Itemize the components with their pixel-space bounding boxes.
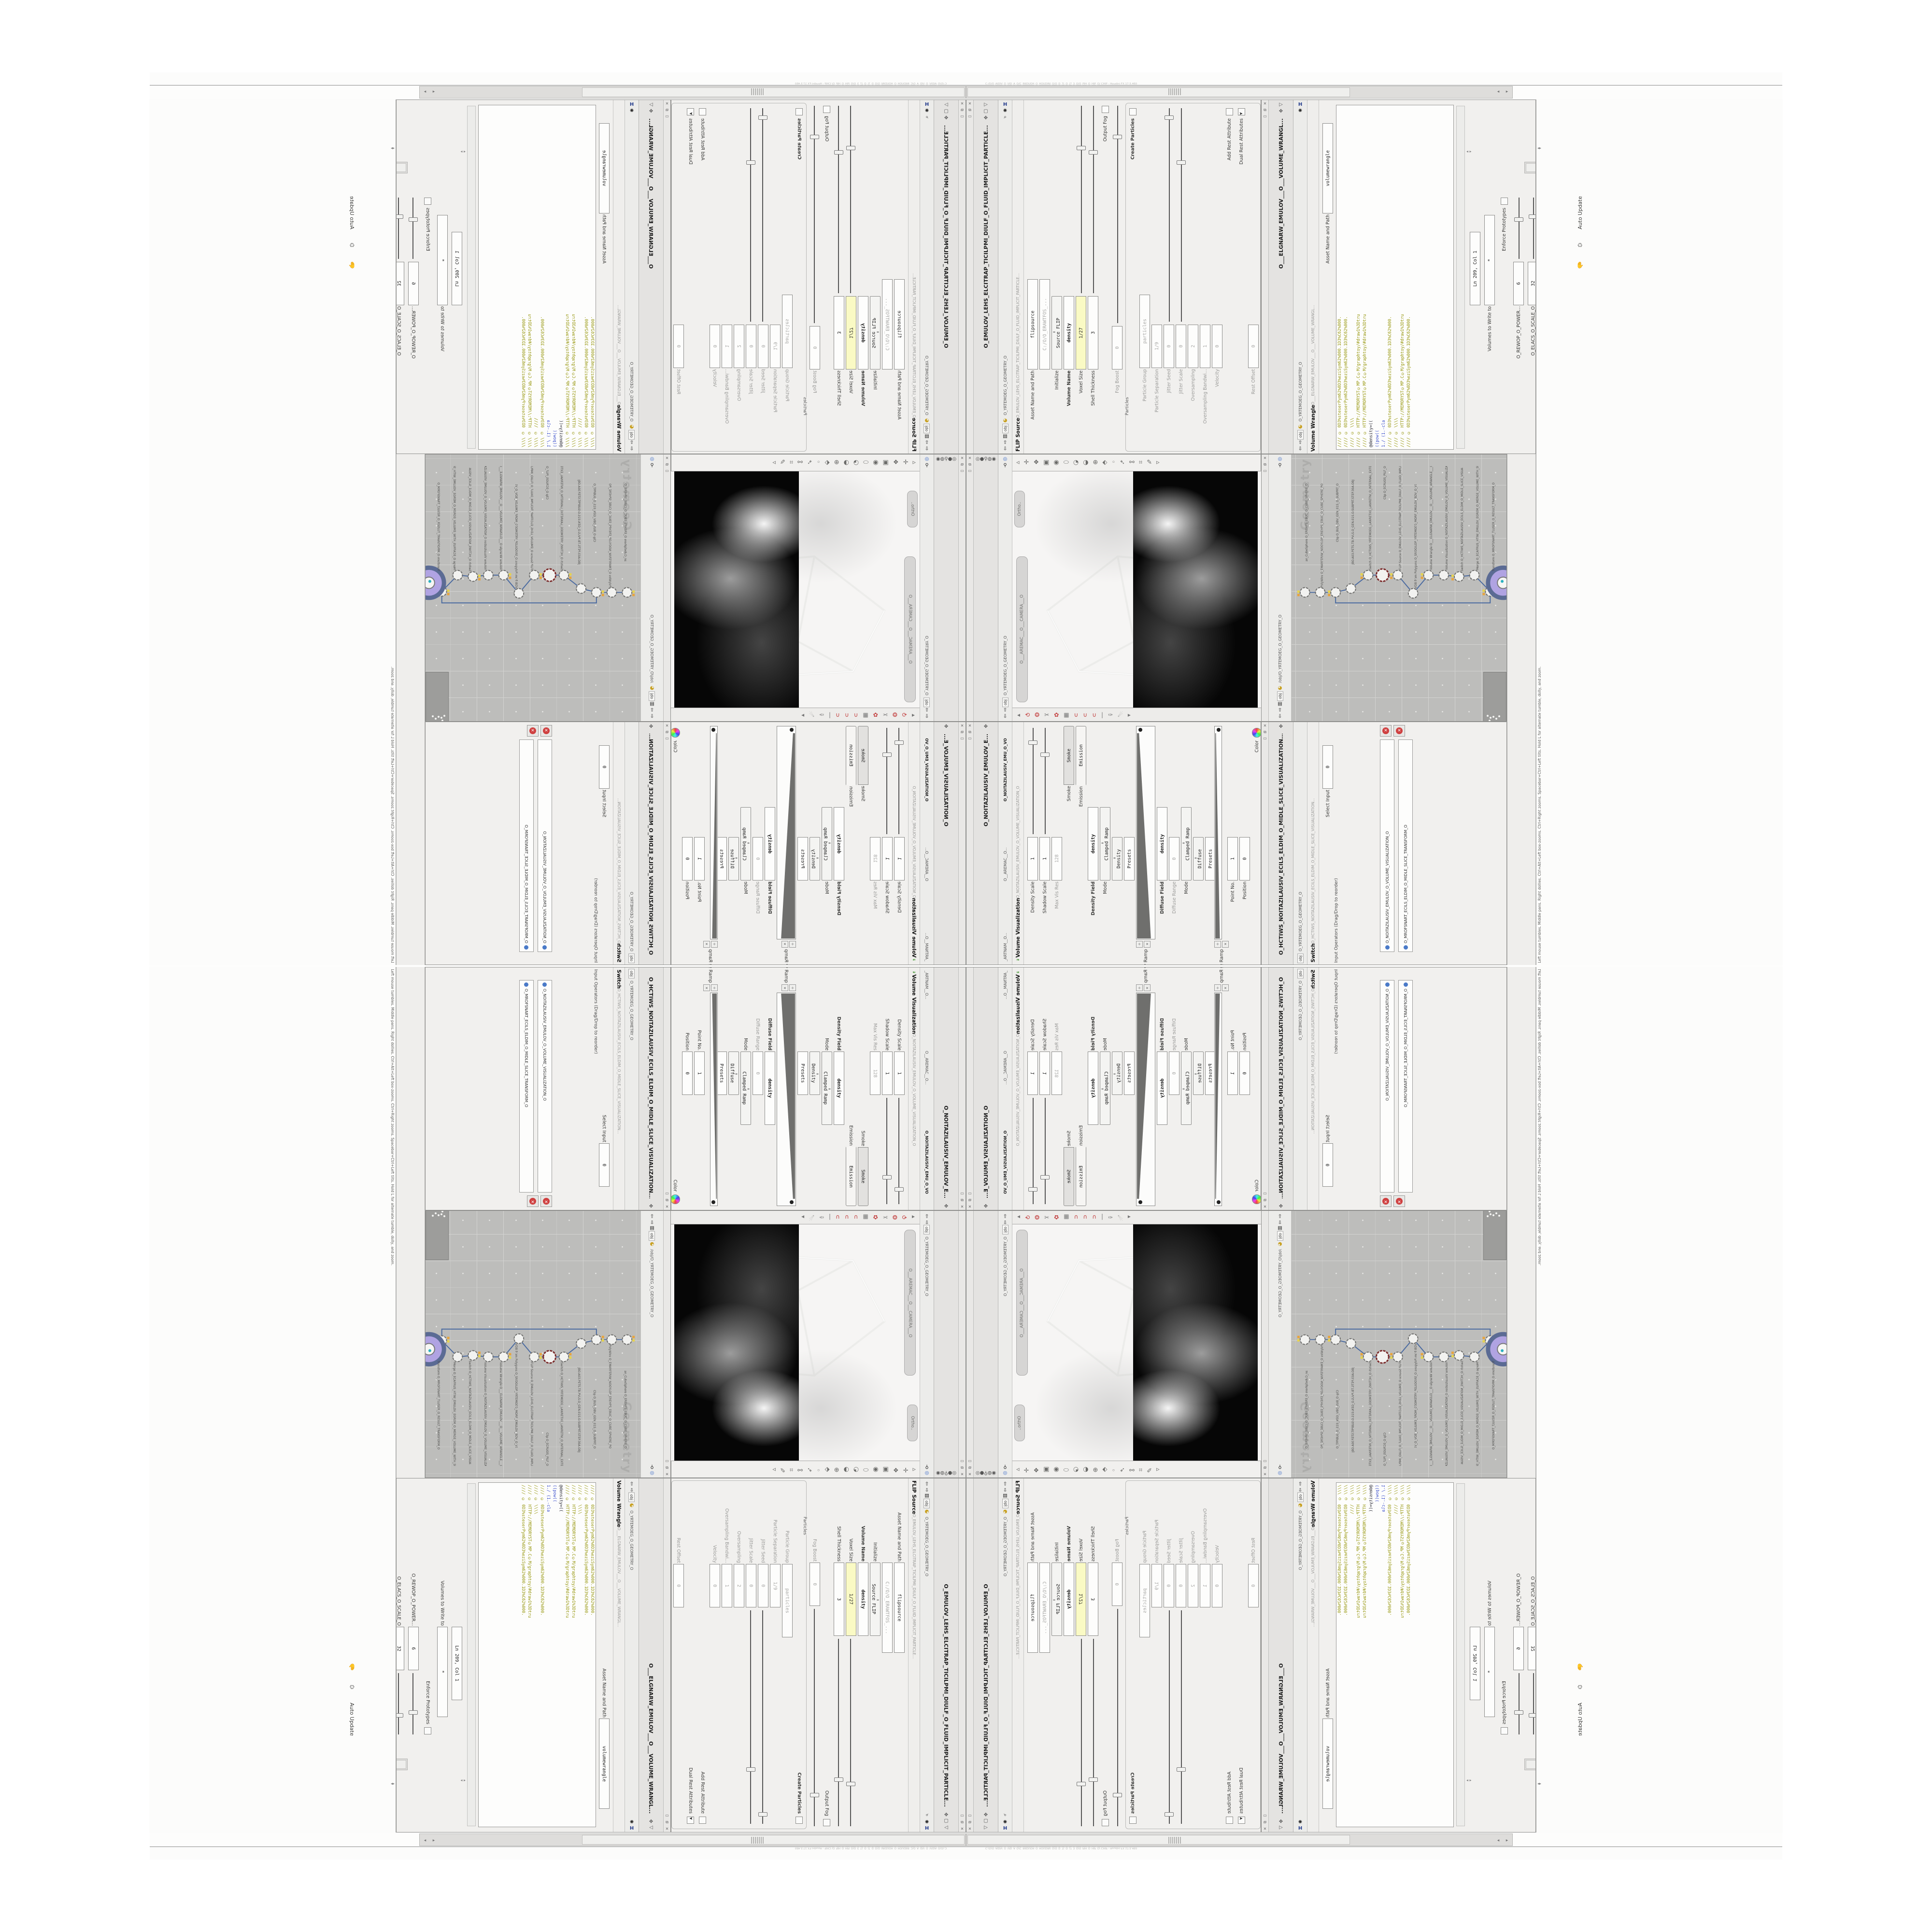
value-field[interactable]: 1 (694, 1051, 705, 1095)
pane-buttons[interactable]: ✕ ⧉ ▭ (1262, 100, 1269, 454)
float-icon[interactable]: ⧉ (1264, 108, 1266, 112)
parameter-column[interactable]: 0 ＋✕ Fog Boost (809, 103, 821, 452)
ramp-add-icon[interactable]: ＋ (711, 941, 718, 948)
pane-tab-label[interactable]: O_EMULOV_LEHS_ELCITRAP_TICILPMI_DIULF_O_… (983, 125, 989, 348)
horizontal-scrollbar[interactable]: ◂ ▸ (419, 1833, 966, 1846)
context-chip[interactable]: obj (629, 969, 635, 979)
collapse-icon[interactable]: ▭ (968, 469, 972, 473)
parameter-column[interactable]: 32 ＋✕ O_ELACS_O_SCALE_O (1527, 195, 1535, 387)
toolbar-icon[interactable]: ✿ (873, 711, 878, 718)
nav-up-icon[interactable]: ⇧ (1298, 440, 1302, 446)
parameter-column[interactable]: 0 ＋✕ Jitter Scale (1175, 1482, 1187, 1827)
pin-icon[interactable]: ⚲ (1278, 462, 1281, 469)
toolbar-icon[interactable]: ∪ (1092, 711, 1096, 718)
toolbar-icon[interactable]: ∪ (1092, 1214, 1096, 1221)
float-icon[interactable]: ⧉ (961, 108, 964, 112)
delete-input-button[interactable]: ✕ (540, 725, 552, 737)
value-field[interactable]: Clamped Ramp (822, 807, 832, 881)
scrollbar-grip[interactable] (1168, 1837, 1181, 1844)
parameter-column[interactable]: density ＋✕ Diffuse Field (764, 725, 776, 963)
pane-tab-flip-source[interactable]: ▷ ▢ ✥ O_EMULOV_LEHS_ELCITRAP_TICILPMI_DI… (934, 100, 958, 454)
slider[interactable] (408, 1671, 419, 1737)
value-field[interactable]: Smoke (1064, 726, 1074, 785)
slider[interactable] (1087, 1637, 1099, 1829)
value-field[interactable]: density (1088, 807, 1098, 881)
checkbox[interactable] (1501, 198, 1508, 205)
value-field[interactable]: 1/27 (1076, 296, 1086, 369)
pane-tab-volvis[interactable]: ✥ O_NOITAZILAUSIV_EMULOV_E... (974, 967, 998, 1210)
context-chip[interactable]: obj (924, 1499, 930, 1508)
close-icon[interactable]: ✕ (1264, 1472, 1267, 1476)
value-field[interactable]: 1 (1027, 837, 1038, 881)
parameter-column[interactable]: 0 ＋✕ Rest Offset (1248, 105, 1259, 450)
slider[interactable] (1039, 1096, 1051, 1207)
value-field[interactable]: 32 (1528, 1627, 1535, 1670)
toolbar-icon[interactable]: ◔ (853, 459, 859, 466)
value-field[interactable]: 1/9 (1151, 325, 1162, 368)
parameter-column[interactable]: 1 ＋✕ Shadow Scale (881, 725, 893, 963)
ortho-pill[interactable]: Ortho.. (1014, 491, 1025, 527)
value-field[interactable]: Presets (797, 837, 808, 881)
pane-tab-label[interactable]: O_NOITAZILAUSIV_EMULOV_E... (943, 1106, 950, 1198)
parameter-column[interactable]: 0 ＋✕ Diffuse Range (1168, 725, 1180, 963)
close-icon[interactable]: ✕ (1264, 1826, 1267, 1831)
parameter-column[interactable]: Diffuse ＋✕ (1193, 969, 1204, 1207)
toolbar-icon[interactable]: ⚯ (1129, 1466, 1135, 1473)
parameter-column[interactable]: 6 ＋✕ O_REWOP_O_POWER... (408, 1545, 419, 1737)
code-scrollbar[interactable] (1456, 106, 1465, 449)
target-icon[interactable]: ◎ (925, 1470, 929, 1476)
pane-tab-volvis[interactable]: ✥ O_NOITAZILAUSIV_EMULOV_E... (934, 722, 958, 965)
switch-input-item[interactable]: O_NOITAZILAUSIV_EMULOV_O_VOLUME_VISUALIZ… (1380, 739, 1394, 952)
value-field[interactable]: 1 (894, 837, 905, 881)
pane-tab-wrangle[interactable]: ▷ ✥ O___ELGNARW_EMULOV___O___VOLUME_WRAN… (639, 1478, 663, 1832)
toolbar-icon[interactable]: ◃ (912, 459, 916, 466)
value-field[interactable]: 1/27 (846, 296, 856, 369)
slider[interactable] (1513, 195, 1524, 261)
toolbar-icon[interactable]: ❖ (893, 1466, 899, 1473)
value-field[interactable]: Smoke (1064, 1147, 1074, 1206)
value-field[interactable]: 3 (834, 296, 844, 369)
parameter-column[interactable]: 2 ＋✕ Oversampling (1187, 1482, 1199, 1827)
value-field[interactable]: 6 (408, 262, 419, 305)
pane-buttons[interactable]: ✕ ⧉ ▭ (966, 722, 974, 965)
value-field[interactable]: 0 (746, 325, 756, 368)
parameter-column[interactable]: 1 ＋✕ Point No. (694, 969, 705, 1207)
float-icon[interactable]: ⧉ (968, 1465, 971, 1470)
context-chip[interactable]: obj (1002, 697, 1009, 707)
nav-up-icon[interactable]: ⇧ (925, 1486, 929, 1492)
toolbar-icon[interactable]: ⟲ (902, 711, 907, 718)
parameter-column[interactable]: volumewrangle ＋✕ Asset Name and Path (1322, 103, 1334, 296)
slider[interactable] (397, 1671, 405, 1737)
tab-camera[interactable]: O__AREMAC__O... (925, 805, 929, 881)
pane-buttons[interactable]: ✕ ⧉ ▭ (966, 967, 974, 1210)
collapse-icon[interactable]: ▭ (1263, 736, 1267, 740)
value-field[interactable]: Diffuse (1193, 1051, 1204, 1095)
close-icon[interactable]: ✕ (961, 456, 964, 460)
pane-buttons[interactable]: ✕ ⧉ ▭ (1262, 1478, 1269, 1832)
value-field[interactable]: volumewrangle (1322, 123, 1333, 213)
toolbar-icon[interactable]: | (1101, 1214, 1103, 1221)
parameter-column[interactable]: Smoke ＋✕ Smoke (857, 969, 869, 1207)
parameter-column[interactable]: Emission ＋✕ Emission (1075, 725, 1087, 963)
parameter-column[interactable]: 3 ＋✕ Shell Thickness (1087, 103, 1099, 452)
parameter-column[interactable]: particles ＋✕ Particle Group (781, 1482, 793, 1827)
ramp-widget[interactable] (777, 993, 796, 1206)
value-field[interactable]: Source FLIP (1051, 296, 1062, 369)
slider[interactable] (1175, 1608, 1187, 1827)
pane-tab-switch[interactable]: ✥ O_HCTIWS_NOITAZILAUSIV_ECILS_ELDIM_O_M… (639, 967, 663, 1210)
checkbox[interactable] (796, 108, 803, 115)
float-icon[interactable]: ⧉ (968, 730, 971, 734)
network-minimap[interactable] (1483, 672, 1506, 721)
view-icons[interactable]: ◎●⚲◍◉ (976, 456, 996, 462)
toolbar-icon[interactable]: ☄ (1118, 711, 1123, 718)
nav-up-icon[interactable]: ⇧ (1298, 1486, 1302, 1492)
delete-input-button[interactable]: ✕ (1380, 725, 1392, 737)
pane-tab-volvis[interactable]: ✥ O_NOITAZILAUSIV_EMULOV_E... (934, 967, 958, 1210)
ramp-widget[interactable] (710, 726, 718, 939)
parameter-column[interactable]: ＋✕ Dual Rest Attributes (685, 105, 696, 450)
nav-down-icon[interactable]: ⇩ (650, 713, 654, 720)
delete-input-button[interactable]: ✕ (1393, 725, 1405, 737)
nav-down-icon[interactable]: ⇩ (925, 713, 929, 720)
nav-up-icon[interactable]: ⇧ (1278, 707, 1282, 713)
value-field[interactable]: 2 (734, 1564, 744, 1607)
parameter-column[interactable]: 1 ＋✕ Oversampling Bandwi... (1199, 1482, 1211, 1827)
toolbar-icon[interactable]: ∪ (836, 711, 840, 718)
nav-down-icon[interactable]: ⇩ (1003, 713, 1007, 720)
toolbar-icon[interactable]: ⬭ (1064, 1466, 1069, 1473)
parameter-column[interactable]: 1 ＋✕ Point No. (694, 725, 705, 963)
toolbar-icon[interactable]: ⬖ (825, 1466, 830, 1473)
code-hscrollbar[interactable] (1524, 1759, 1535, 1770)
toolbar-icon[interactable]: ◔ (853, 1466, 859, 1473)
slider[interactable] (1039, 725, 1051, 836)
magnifier-icon[interactable]: ⌕ (925, 114, 928, 120)
toolbar-icon[interactable]: ∪ (1074, 1214, 1079, 1221)
value-field[interactable]: 0 (599, 1143, 610, 1187)
toolbar-icon[interactable]: ❂ (893, 1214, 897, 1221)
toolbar-icon[interactable]: ✑ (819, 711, 824, 718)
checkbox[interactable] (1501, 1727, 1508, 1734)
pane-tab-label[interactable]: O_HCTIWS_NOITAZILAUSIV_ECILS_ELDIM_O_MID… (1278, 734, 1284, 955)
value-field[interactable]: 6 (1513, 262, 1524, 305)
nav-up-icon[interactable]: ⇧ (1003, 440, 1007, 446)
auto-update-button[interactable]: Auto Update (1577, 196, 1583, 229)
collapse-icon[interactable]: ▭ (1263, 1459, 1267, 1463)
tab-volume-visualization[interactable]: O_NOITAZILAUSIV_EMU_O_VO (1003, 725, 1008, 801)
color-swatch[interactable] (1252, 1194, 1261, 1204)
parameter-column[interactable]: Clamped Ramp ＋✕ Mode (1180, 725, 1192, 963)
slider[interactable] (833, 103, 845, 295)
auto-update-cluster[interactable]: Auto Update ♻ ✋ (1576, 196, 1584, 269)
play-icon[interactable]: ▷ (944, 102, 948, 107)
collapse-icon[interactable]: ▭ (665, 1192, 669, 1196)
toolbar-icon[interactable]: ⌗ (790, 459, 793, 466)
value-field[interactable]: 3 (834, 1563, 844, 1636)
toolbar-icon[interactable]: ⊕ (1093, 1466, 1098, 1473)
toolbar-icon[interactable]: ▣ (883, 459, 889, 466)
pane-buttons[interactable]: ✕ ⧉ ▭ (1262, 967, 1269, 1210)
collapse-icon[interactable]: ▭ (1263, 469, 1267, 473)
close-icon[interactable]: ✕ (666, 101, 669, 106)
scrollbar-thumb[interactable] (582, 87, 965, 97)
value-field[interactable]: volumewrangle (599, 123, 610, 213)
nav-down-icon[interactable]: ⇩ (1298, 1480, 1302, 1486)
parameter-column[interactable]: ＋✕ Add Rest Attribute (697, 105, 709, 450)
pin-icon[interactable]: ✥ (649, 1203, 653, 1208)
switch-input-item[interactable]: O_MROFSNART_ECILS_ELDIM_O_MIDLE_SLICE_TR… (1398, 980, 1413, 1193)
parameter-column[interactable]: ＋✕ Color (1251, 725, 1261, 963)
gear-icon[interactable]: ✺ (1003, 108, 1007, 114)
target-icon[interactable]: ◎ (1278, 456, 1282, 462)
magnifier-icon[interactable]: ⌕ (1004, 1812, 1007, 1818)
toolbar-icon[interactable]: ➴ (807, 1466, 812, 1473)
target-icon[interactable]: ◎ (925, 456, 929, 462)
pane-buttons[interactable]: ✕ ⧉ ▭ (1262, 722, 1269, 965)
parameter-column[interactable]: density ＋✕ Diffuse Field (1156, 969, 1168, 1207)
ramp-widget[interactable] (1214, 993, 1222, 1206)
pane-tab-label[interactable]: O_EMULOV_LEHS_ELCITRAP_TICILPMI_DIULF_O_… (983, 1584, 989, 1807)
value-field[interactable]: density (1088, 1051, 1098, 1125)
ortho-pill[interactable]: Ortho.. (907, 1405, 918, 1441)
pin-icon[interactable]: ✥ (984, 1203, 988, 1208)
float-icon[interactable]: ⧉ (968, 1198, 971, 1202)
close-icon[interactable]: ✕ (1264, 101, 1267, 106)
close-icon[interactable]: ✕ (666, 1472, 669, 1476)
collapse-icon[interactable]: ▭ (1263, 114, 1267, 118)
toolbar-icon[interactable]: ☄ (809, 711, 814, 718)
collapse-icon[interactable]: ▭ (960, 469, 964, 473)
pane-divider-arrows[interactable]: ◂ ▸ (460, 149, 466, 154)
close-icon[interactable]: ✕ (961, 724, 964, 728)
value-field[interactable]: 1 (1227, 837, 1238, 881)
value-field[interactable]: Ln 209, Col 1 (1470, 1627, 1480, 1700)
parameter-column[interactable]: ＋✕ Add Rest Attribute (1223, 105, 1235, 450)
parameter-column[interactable]: ＋✕ Color (671, 725, 681, 963)
viewport-canvas[interactable]: O___AREMAC___O___CAMERA___O Ortho.. (1012, 1224, 1263, 1461)
network-graph[interactable]: Geometry an_CubeSphere O_EREHPS_EBUC_O_C… (426, 1211, 640, 1477)
toolbar-icon[interactable]: ❖ (1033, 1466, 1039, 1473)
pane-buttons[interactable]: ✕ ⧉ ▭ (958, 100, 966, 454)
view-icons[interactable]: ◎●⚲◍◉ (976, 1470, 996, 1476)
parameter-column[interactable]: 1 ＋✕ Shadow Scale (881, 969, 893, 1207)
slider[interactable] (1163, 105, 1175, 324)
toolbar-icon[interactable]: ◑ (1083, 459, 1088, 466)
toolbar-icon[interactable]: ▹ (1156, 459, 1160, 466)
toolbar-icon[interactable]: ◃ (1016, 1466, 1020, 1473)
collapse-icon[interactable]: ▭ (1263, 1814, 1267, 1818)
pane-buttons[interactable]: ✕ ⧉ ▭ (958, 967, 966, 1210)
pin-icon[interactable]: ✥ (944, 1811, 948, 1817)
value-field[interactable]: Density (810, 837, 820, 881)
scroll-right-arrow-icon[interactable]: ▸ (421, 1836, 429, 1845)
value-field[interactable]: 0 (758, 325, 768, 368)
ramp-widget[interactable] (777, 726, 796, 939)
parameter-column[interactable]: 0 ＋✕ Select Input (598, 1061, 610, 1207)
checkbox[interactable] (1129, 1817, 1136, 1824)
switch-input-item[interactable]: O_NOITAZILAUSIV_EMULOV_O_VOLUME_VISUALIZ… (538, 739, 552, 952)
nav-down-icon[interactable]: ⇩ (1003, 1212, 1007, 1219)
value-field[interactable]: 0 (810, 1563, 820, 1606)
float-icon[interactable]: ⧉ (961, 462, 964, 467)
pin-icon[interactable]: ✥ (944, 1203, 948, 1208)
checkbox[interactable] (1226, 1817, 1233, 1824)
volvis-tabs[interactable]: O_NOITAZILAUSIV_EMU_O_VO O__AREMAC__O...… (920, 967, 934, 1210)
parameter-column[interactable]: 0 ＋✕ Jitter Seed (757, 1482, 769, 1827)
parameter-column[interactable]: ＋✕ Output Fog (1099, 1480, 1111, 1829)
target-icon[interactable]: ◎ (650, 1470, 654, 1476)
parameter-column[interactable]: 0 ＋✕ Rest Offset (1248, 1482, 1259, 1827)
checkbox[interactable] (1238, 108, 1245, 115)
pin-icon[interactable]: ✥ (984, 1811, 988, 1817)
checkbox[interactable] (796, 1817, 803, 1824)
toolbar-icon[interactable]: ◎ (952, 1470, 956, 1476)
parameter-column[interactable]: 1/27 ＋✕ Voxel Size (845, 103, 857, 452)
value-field[interactable]: 0 (746, 1564, 756, 1607)
parameter-column[interactable]: 0 ＋✕ Position (1239, 969, 1250, 1207)
toolbar-icon[interactable]: ⊕ (1093, 459, 1098, 466)
parameter-column[interactable]: volumewrangle ＋✕ Asset Name and Path (598, 1636, 610, 1829)
pin-icon[interactable]: ✥ (1279, 1818, 1283, 1823)
parameter-column[interactable]: Diffuse ＋✕ (728, 725, 739, 963)
nav-up-icon[interactable]: ⇧ (1003, 1219, 1007, 1225)
delete-input-button[interactable]: ✕ (540, 1195, 552, 1207)
value-field[interactable]: particles (782, 295, 793, 368)
view-icons[interactable]: ◎●⚲◍◉ (936, 1470, 956, 1476)
parameter-column[interactable]: 0 ＋✕ Jitter Seed (1163, 1482, 1175, 1827)
color-swatch[interactable] (671, 1194, 680, 1204)
parameter-column[interactable]: density ＋✕ Density Field (1087, 725, 1099, 963)
value-field[interactable]: 1 (882, 1051, 893, 1095)
parameter-column[interactable]: Ln 209, Col 1 ＋✕ (1469, 195, 1481, 387)
nav-down-icon[interactable]: ⇩ (1298, 446, 1302, 452)
float-icon[interactable]: ⧉ (961, 1465, 964, 1470)
collapse-icon[interactable]: ▭ (960, 1459, 964, 1463)
pane-tab-label[interactable]: O___ELGNARW_EMULOV___O___VOLUME_WRANGL..… (648, 1663, 654, 1814)
toolbar-icon[interactable]: ◔ (1073, 1466, 1079, 1473)
toolbar-icon[interactable]: ✿ (1054, 1214, 1059, 1221)
nav-up-icon[interactable]: ⇧ (1003, 707, 1007, 713)
parameter-column[interactable]: ＋✕ Add Rest Attribute (1223, 1482, 1235, 1827)
parameter-column[interactable]: 1/9 ＋✕ Particle Separation (769, 105, 781, 450)
recycle-icon[interactable]: ♻ (349, 1683, 355, 1690)
tab-volume-visualization[interactable]: O_NOITAZILAUSIV_EMU_O_VO (1003, 1131, 1008, 1207)
delete-input-button[interactable]: ✕ (527, 725, 539, 737)
toolbar-icon[interactable]: ✎ (780, 459, 785, 466)
scroll-left-arrow-icon[interactable]: ◂ (1494, 87, 1503, 96)
parameter-column[interactable]: 1/27 ＋✕ Voxel Size (1075, 1480, 1087, 1829)
value-field[interactable]: 0 (710, 1564, 720, 1607)
slider[interactable] (757, 105, 769, 324)
parameter-column[interactable]: ＋✕ Enforce Prototypes (422, 1545, 434, 1737)
parameter-column[interactable]: C:/O/O_ERAWTFOS_... ＋✕ (1039, 1480, 1051, 1829)
pane-buttons[interactable]: ✕ ⧉ ▭ (958, 455, 966, 721)
pane-divider-arrows[interactable]: ◂▸ (391, 1782, 395, 1786)
value-field[interactable]: 1 (694, 837, 705, 881)
toolbar-icon[interactable]: ◑ (843, 1466, 849, 1473)
value-field[interactable]: density (1157, 1051, 1167, 1125)
float-icon[interactable]: ⧉ (1264, 1198, 1266, 1202)
pin-icon[interactable]: ⚲ (1003, 462, 1007, 469)
parameter-column[interactable]: Presets ＋✕ (797, 725, 809, 963)
collapse-icon[interactable]: ▭ (665, 736, 669, 740)
pin-icon[interactable]: ⚲ (925, 1463, 928, 1470)
pin-icon[interactable]: ✥ (649, 109, 653, 114)
pane-buttons[interactable]: ✕ ⧉ ▭ (958, 1478, 966, 1832)
parameter-column[interactable]: Presets ＋✕ (797, 969, 809, 1207)
value-field[interactable]: Source FLIP (1051, 1563, 1062, 1636)
toolbar-icon[interactable]: ∪ (854, 711, 858, 718)
pane-buttons[interactable]: ✕ ⧉ ▭ (663, 100, 670, 454)
toolbar-icon[interactable]: ⚯ (797, 459, 803, 466)
toolbar-icon[interactable]: ✛ (903, 459, 909, 466)
parameter-column[interactable]: ＋✕ Enforce Prototypes (1498, 195, 1510, 387)
value-field[interactable]: 0 (1248, 1564, 1259, 1607)
pane-buttons[interactable]: ✕ ⧉ ▭ (958, 1211, 966, 1477)
recycle-icon[interactable]: ♻ (1577, 1683, 1583, 1690)
parameter-column[interactable]: 128 ＋✕ Max Vis Res (1051, 969, 1063, 1207)
value-field[interactable]: 0 (673, 325, 684, 368)
toolbar-icon[interactable]: ⚯ (797, 1466, 803, 1473)
parameter-column[interactable]: 1 ＋✕ Shadow Scale (1039, 969, 1051, 1207)
parameter-column[interactable]: flipsource ＋✕ Asset Name and Path (1027, 103, 1038, 452)
value-field[interactable]: Presets (716, 837, 727, 881)
toolbar-icon[interactable]: ⚲ (944, 1470, 948, 1476)
value-field[interactable]: Emission (1076, 1147, 1086, 1206)
parameter-column[interactable]: 0 ＋✕ Position (682, 725, 693, 963)
float-icon[interactable]: ⧉ (666, 462, 668, 467)
context-chip[interactable]: obj (1297, 953, 1304, 963)
parameter-column[interactable]: ＋✕ Enforce Prototypes (422, 195, 434, 387)
value-field[interactable]: Clamped Ramp (822, 1051, 832, 1125)
toolbar-icon[interactable]: ◦ (817, 1466, 821, 1473)
value-field[interactable]: Presets (797, 1051, 808, 1095)
toolbar-icon[interactable]: ⬭ (863, 1466, 868, 1473)
value-field[interactable]: Ln 209, Col 1 (452, 1627, 462, 1700)
pin-icon[interactable]: ✥ (649, 724, 653, 729)
pane-tab-wrangle[interactable]: ▷ ✥ O___ELGNARW_EMULOV___O___VOLUME_WRAN… (1269, 100, 1293, 454)
pin-icon[interactable]: ✥ (1279, 109, 1283, 114)
nav-down-icon[interactable]: ⇩ (925, 446, 929, 452)
parameter-column[interactable]: density ＋✕ Density Field (1087, 969, 1099, 1207)
parameter-column[interactable]: 0 ＋✕ Position (1239, 725, 1250, 963)
pin-icon[interactable]: ✥ (1279, 1203, 1283, 1208)
parameter-column[interactable]: 2 ＋✕ Oversampling (733, 105, 745, 450)
gear-icon[interactable]: ✺ (630, 1818, 634, 1824)
value-field[interactable]: particles (1139, 1564, 1150, 1637)
value-field[interactable]: 2 (1188, 325, 1198, 368)
toolbar-icon[interactable]: ◎ (952, 456, 956, 462)
parameter-column[interactable]: 1/9 ＋✕ Particle Separation (1151, 105, 1163, 450)
ramp-del-icon[interactable]: ✕ (1144, 941, 1151, 948)
vex-code-editor[interactable]: //// © 0D3%steserPym62%0D3%eziSym62%000.… (478, 105, 596, 450)
vex-code-editor[interactable]: //// © 0D3%steserPym62%0D3%eziSym62%000.… (1336, 105, 1454, 450)
value-field[interactable]: density (1064, 296, 1074, 369)
parameter-column[interactable]: ＋✕ Add Rest Attribute (697, 1482, 709, 1827)
parameter-column[interactable]: 0 ＋✕ Jitter Scale (745, 1482, 757, 1827)
parameter-column[interactable]: ＋✕ Density Ramp (776, 725, 796, 963)
value-field[interactable]: C:/O/O_ERAWTFOS_... (1039, 279, 1050, 369)
toolbar-icon[interactable]: ✎ (780, 1466, 785, 1473)
value-field[interactable]: 1 (1039, 837, 1050, 881)
parameter-column[interactable]: 1 ＋✕ Shadow Scale (1039, 725, 1051, 963)
parameter-column[interactable]: 6 ＋✕ O_REWOP_O_POWER... (1513, 195, 1524, 387)
parameter-column[interactable]: Emission ＋✕ Emission (1075, 969, 1087, 1207)
slider[interactable] (1087, 103, 1099, 295)
